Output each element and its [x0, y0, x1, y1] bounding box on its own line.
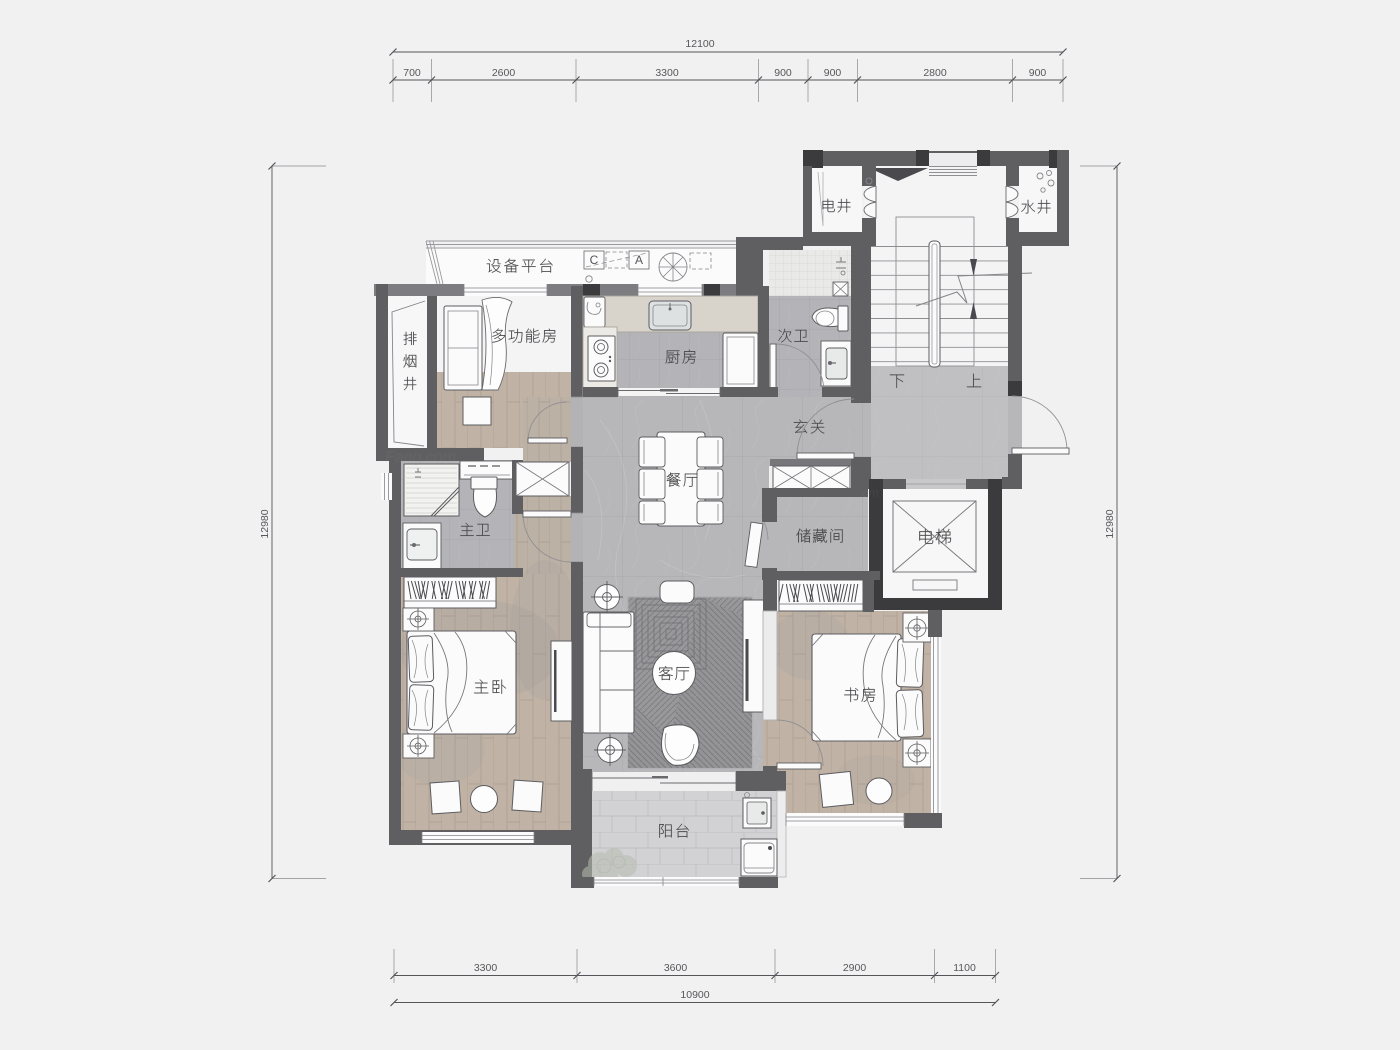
svg-text:10900: 10900: [680, 989, 709, 1001]
svg-text:1100: 1100: [953, 962, 976, 974]
svg-text:900: 900: [824, 67, 842, 79]
svg-text:2900: 2900: [843, 962, 867, 974]
svg-text:3300: 3300: [474, 962, 498, 974]
svg-text:2800: 2800: [923, 67, 947, 79]
svg-text:12980: 12980: [259, 509, 271, 538]
svg-text:3300: 3300: [655, 67, 679, 79]
svg-text:3600: 3600: [664, 962, 688, 974]
svg-text:900: 900: [1029, 67, 1047, 79]
svg-text:om: om: [862, 486, 879, 500]
svg-text:12980: 12980: [1104, 509, 1116, 538]
svg-text:12100: 12100: [685, 38, 714, 50]
svg-text:Fang.com: Fang.com: [385, 449, 456, 466]
svg-text:900: 900: [774, 67, 792, 79]
svg-text:2600: 2600: [492, 67, 516, 79]
svg-text:700: 700: [403, 67, 421, 79]
